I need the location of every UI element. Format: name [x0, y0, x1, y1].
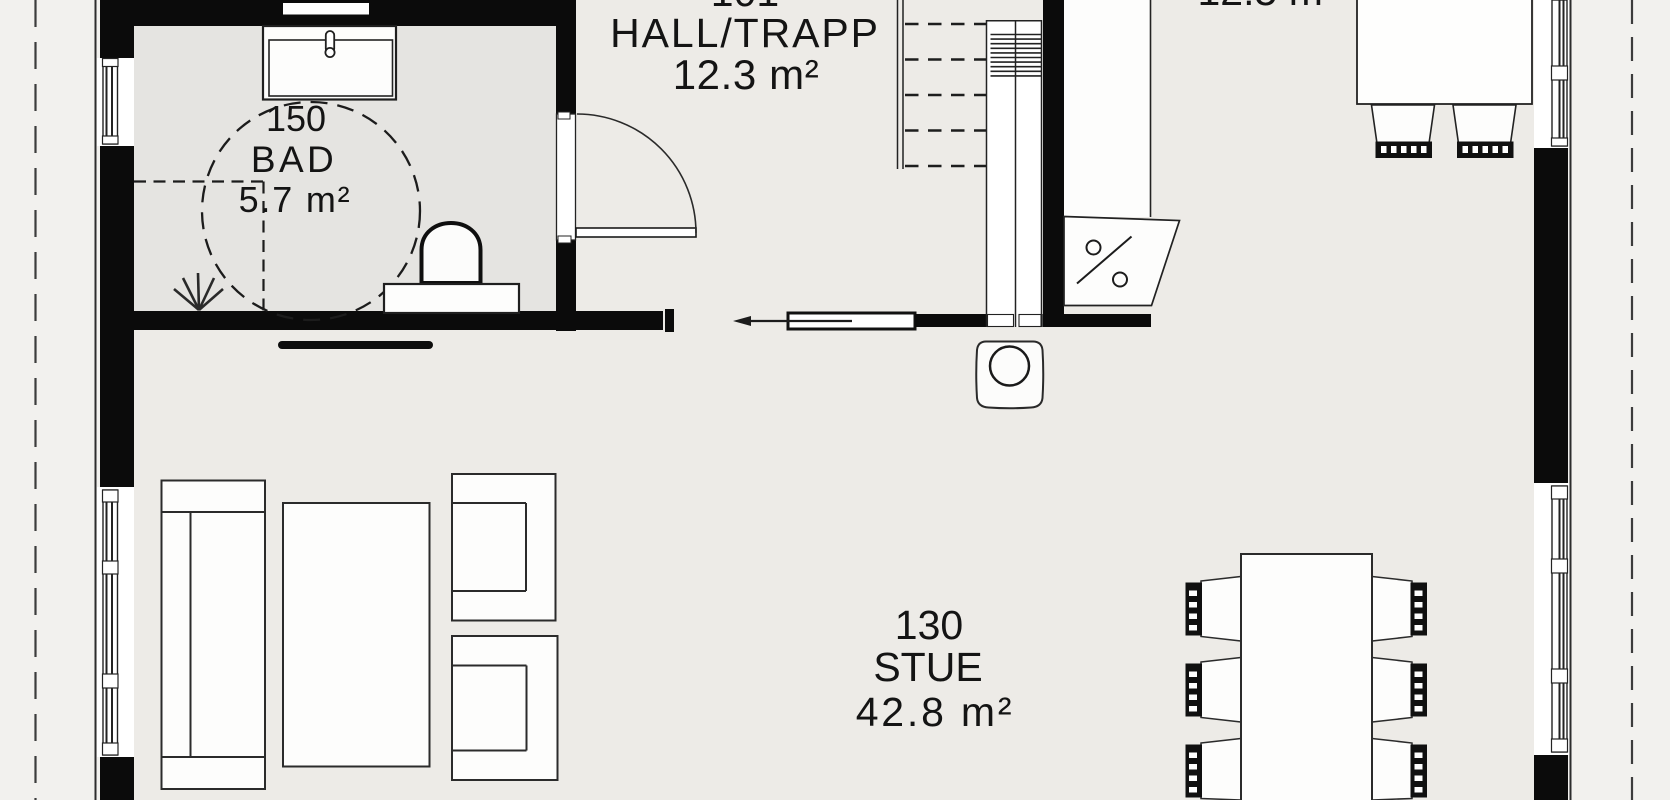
- svg-text:12.5 m²: 12.5 m²: [1198, 0, 1337, 14]
- svg-text:150: 150: [266, 98, 326, 139]
- svg-text:BAD: BAD: [251, 139, 337, 180]
- svg-text:12.3 m²: 12.3 m²: [673, 51, 820, 98]
- svg-text:130: 130: [895, 602, 963, 648]
- svg-text:STUE: STUE: [873, 644, 982, 690]
- svg-text:HALL/TRAPP: HALL/TRAPP: [610, 10, 880, 56]
- svg-text:42.8 m²: 42.8 m²: [856, 689, 1015, 735]
- svg-text:5.7 m²: 5.7 m²: [239, 179, 352, 220]
